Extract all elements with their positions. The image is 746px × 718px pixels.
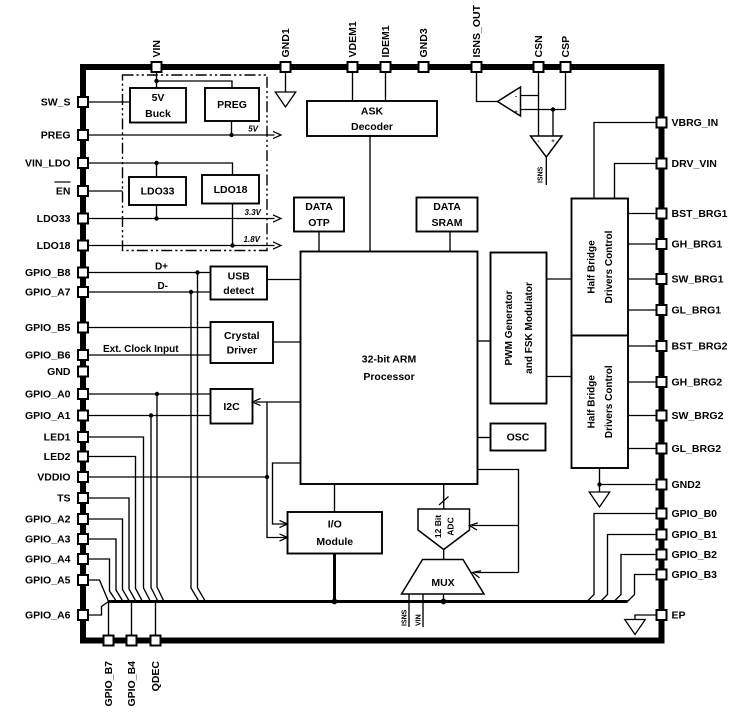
svg-text:I2C: I2C <box>223 401 240 413</box>
svg-text:GPIO_A6: GPIO_A6 <box>25 610 71 622</box>
svg-text:GH_BRG2: GH_BRG2 <box>672 377 723 389</box>
svg-text:LDO18: LDO18 <box>37 240 71 252</box>
svg-text:Crystal: Crystal <box>224 330 260 342</box>
svg-text:DATA: DATA <box>433 201 461 213</box>
svg-text:D-: D- <box>157 281 168 292</box>
svg-text:GPIO_B6: GPIO_B6 <box>25 350 71 362</box>
svg-text:DRV_VIN: DRV_VIN <box>672 158 717 170</box>
svg-text:VDDIO: VDDIO <box>37 472 70 484</box>
svg-text:GPIO_B0: GPIO_B0 <box>672 508 718 520</box>
svg-text:detect: detect <box>223 285 254 297</box>
svg-text:Driver: Driver <box>227 344 257 356</box>
svg-text:5V: 5V <box>152 92 165 104</box>
svg-text:GND: GND <box>47 366 71 378</box>
svg-text:Half Bridge: Half Bridge <box>587 240 598 294</box>
svg-text:Buck: Buck <box>145 108 171 120</box>
svg-text:32-bit ARM: 32-bit ARM <box>362 354 417 366</box>
svg-text:PREG: PREG <box>217 99 247 111</box>
svg-text:GPIO_B8: GPIO_B8 <box>25 267 71 279</box>
svg-text:GPIO_A1: GPIO_A1 <box>25 410 71 422</box>
svg-text:PREG: PREG <box>41 130 71 142</box>
svg-text:LED1: LED1 <box>44 432 71 444</box>
svg-text:BST_BRG1: BST_BRG1 <box>672 208 728 220</box>
svg-text:GND3: GND3 <box>418 28 430 57</box>
svg-text:GL_BRG2: GL_BRG2 <box>672 443 722 455</box>
svg-text:GND2: GND2 <box>672 479 701 491</box>
svg-text:VDEM1: VDEM1 <box>347 21 359 57</box>
svg-text:ADC: ADC <box>445 517 455 535</box>
svg-text:VIN: VIN <box>151 40 163 58</box>
svg-text:PWM Generator: PWM Generator <box>504 290 515 365</box>
svg-text:DATA: DATA <box>305 201 333 213</box>
svg-text:GPIO_A3: GPIO_A3 <box>25 534 71 546</box>
svg-text:GPIO_B7: GPIO_B7 <box>103 661 115 707</box>
svg-text:5V: 5V <box>248 125 258 134</box>
svg-text:+: + <box>551 139 555 145</box>
svg-text:Half Bridge: Half Bridge <box>587 375 598 429</box>
svg-text:1.8V: 1.8V <box>244 235 261 244</box>
svg-text:ISNS: ISNS <box>402 609 409 626</box>
svg-text:LDO33: LDO33 <box>37 213 71 225</box>
svg-text:VIN_LDO: VIN_LDO <box>25 158 71 170</box>
svg-text:GPIO_A4: GPIO_A4 <box>25 554 71 566</box>
svg-text:-: - <box>538 139 540 145</box>
svg-text:Ext. Clock Input: Ext. Clock Input <box>103 344 179 355</box>
svg-text:Processor: Processor <box>363 371 414 383</box>
svg-text:LED2: LED2 <box>44 451 71 463</box>
svg-text:OTP: OTP <box>308 217 330 229</box>
svg-text:Drivers Control: Drivers Control <box>604 365 615 438</box>
svg-text:GPIO_A7: GPIO_A7 <box>25 287 71 299</box>
svg-text:Module: Module <box>316 536 353 548</box>
svg-text:3.3V: 3.3V <box>245 208 262 217</box>
svg-text:-: - <box>515 95 517 101</box>
svg-text:QDEC: QDEC <box>150 661 162 692</box>
svg-text:GND1: GND1 <box>280 28 292 57</box>
svg-text:GPIO_B2: GPIO_B2 <box>672 549 718 561</box>
svg-text:Drivers Control: Drivers Control <box>604 230 615 303</box>
svg-text:ASK: ASK <box>361 105 384 117</box>
svg-text:VIN: VIN <box>416 614 423 626</box>
svg-text:12 Bit: 12 Bit <box>433 515 443 538</box>
svg-text:SRAM: SRAM <box>432 217 463 229</box>
svg-text:GPIO_A5: GPIO_A5 <box>25 575 71 587</box>
svg-text:GPIO_B1: GPIO_B1 <box>672 529 718 541</box>
svg-text:GPIO_B5: GPIO_B5 <box>25 322 71 334</box>
svg-text:D+: D+ <box>155 262 168 273</box>
svg-text:GPIO_A0: GPIO_A0 <box>25 389 71 401</box>
svg-text:I/O: I/O <box>328 519 342 531</box>
svg-text:TS: TS <box>57 493 70 505</box>
svg-text:IDEM1: IDEM1 <box>380 25 392 57</box>
svg-text:GPIO_B4: GPIO_B4 <box>126 661 138 707</box>
svg-text:GL_BRG1: GL_BRG1 <box>672 305 722 317</box>
svg-text:CSP: CSP <box>560 36 572 58</box>
svg-text:GPIO_B3: GPIO_B3 <box>672 569 718 581</box>
svg-text:LDO33: LDO33 <box>141 186 175 198</box>
svg-text:SW_BRG1: SW_BRG1 <box>672 274 724 286</box>
svg-text:CSN: CSN <box>533 35 545 57</box>
svg-text:EP: EP <box>672 610 686 622</box>
svg-text:SW_S: SW_S <box>41 97 71 109</box>
svg-text:LDO18: LDO18 <box>214 184 248 196</box>
svg-text:ISNS: ISNS <box>538 166 545 183</box>
svg-text:BST_BRG2: BST_BRG2 <box>672 341 728 353</box>
svg-text:OSC: OSC <box>507 432 530 444</box>
svg-text:and FSK Modulator: and FSK Modulator <box>524 282 535 374</box>
svg-text:SW_BRG2: SW_BRG2 <box>672 410 724 422</box>
svg-text:GPIO_A2: GPIO_A2 <box>25 514 71 526</box>
svg-text:MUX: MUX <box>431 577 454 589</box>
svg-text:ISNS_OUT: ISNS_OUT <box>471 4 483 57</box>
svg-text:EN: EN <box>56 186 71 198</box>
svg-text:Decoder: Decoder <box>351 121 393 133</box>
svg-text:USB: USB <box>228 270 251 282</box>
svg-text:VBRG_IN: VBRG_IN <box>672 117 719 129</box>
svg-text:GH_BRG1: GH_BRG1 <box>672 239 723 251</box>
svg-text:+: + <box>514 110 518 116</box>
